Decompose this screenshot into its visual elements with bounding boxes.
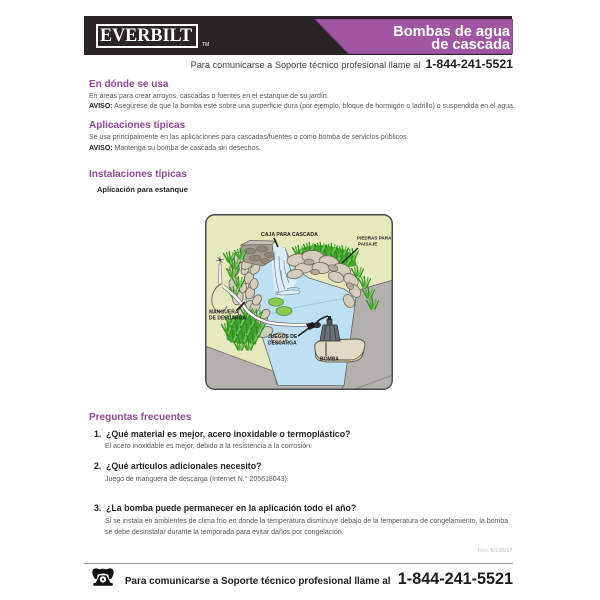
svg-text:DESCARGA: DESCARGA	[268, 341, 297, 347]
svg-text:JUEGOS DE: JUEGOS DE	[268, 334, 298, 340]
svg-text:MANGUERA: MANGUERA	[209, 310, 239, 316]
svg-text:CAJA PARA CASCADA: CAJA PARA CASCADA	[261, 232, 318, 238]
svg-text:BOMBA: BOMBA	[320, 357, 339, 363]
svg-text:PAISAJE: PAISAJE	[358, 242, 377, 247]
svg-text:DE DESCARGA: DE DESCARGA	[209, 316, 246, 322]
svg-text:PIEDRAS PARA: PIEDRAS PARA	[357, 236, 392, 241]
